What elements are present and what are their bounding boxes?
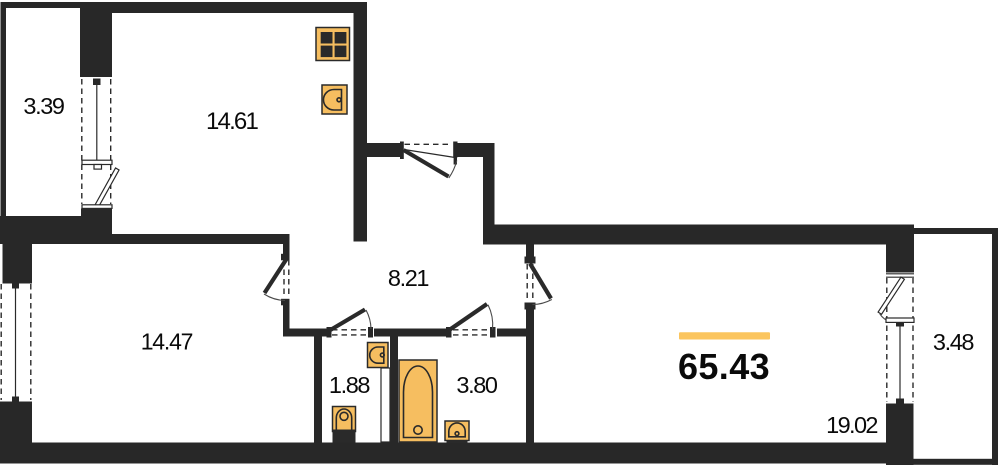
svg-text:19.02: 19.02 <box>826 412 877 438</box>
svg-text:3.48: 3.48 <box>933 329 974 355</box>
svg-text:8.21: 8.21 <box>388 265 428 291</box>
svg-text:14.47: 14.47 <box>141 329 193 355</box>
svg-text:14.61: 14.61 <box>206 108 259 135</box>
svg-text:1.88: 1.88 <box>329 372 370 398</box>
svg-text:3.80: 3.80 <box>456 372 497 398</box>
svg-text:3.39: 3.39 <box>23 93 63 119</box>
svg-text:65.43: 65.43 <box>678 346 770 387</box>
